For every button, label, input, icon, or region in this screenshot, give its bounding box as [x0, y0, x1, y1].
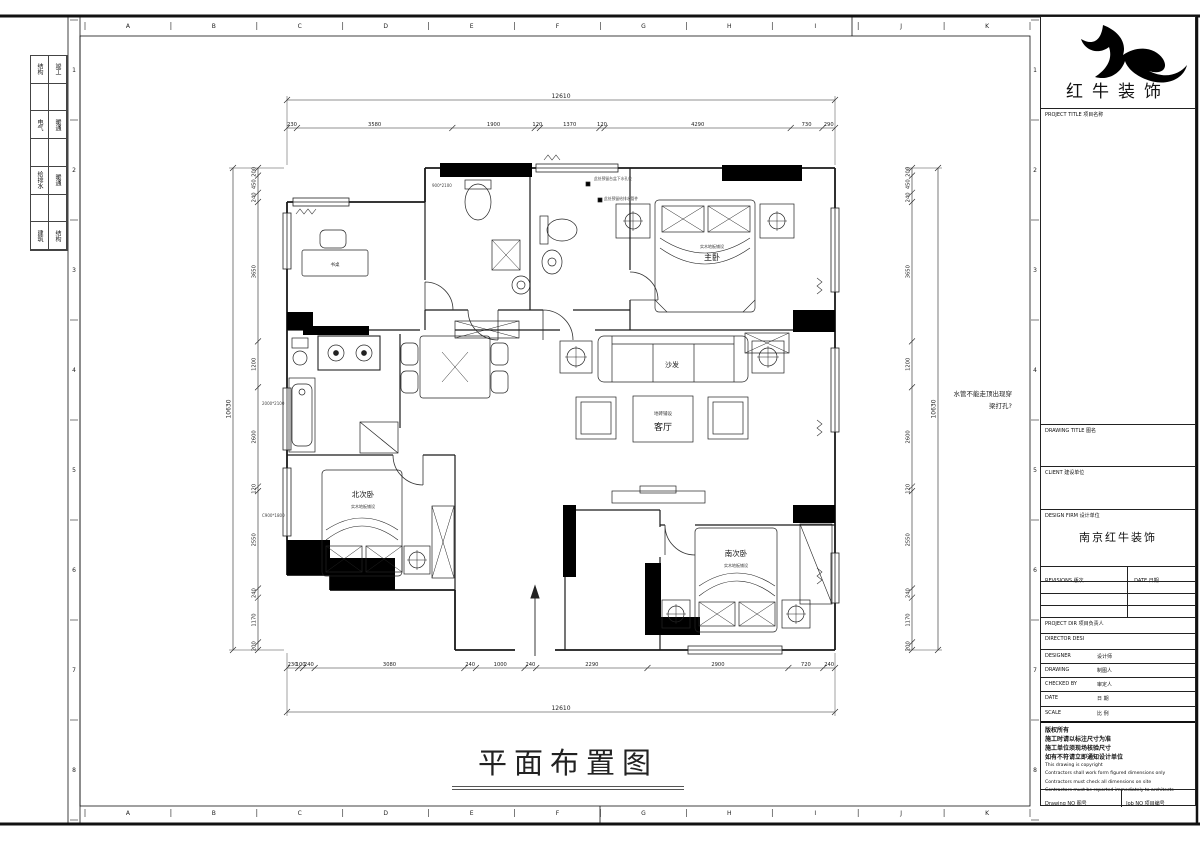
copyright-line: 施工单位须现场核验尺寸 — [1045, 744, 1195, 753]
revisions-header: REVISIONS 版次 DATE 日期 — [1041, 566, 1195, 581]
design-firm-label: DESIGN FIRM 设计单位 — [1041, 510, 1195, 519]
svg-text:B: B — [212, 23, 216, 30]
doors — [393, 272, 695, 555]
svg-text:7: 7 — [1033, 667, 1037, 674]
room-study: 书桌 — [302, 230, 368, 276]
dim-bottom-segments: 2301002403080240100024022902900720240 — [284, 662, 838, 671]
bathrooms: 此处预留台盆下水孔位 此处预留给排水管件 — [465, 176, 638, 294]
svg-text:5: 5 — [72, 467, 76, 474]
sofa-label: 沙发 — [665, 360, 679, 369]
copyright-line: Contractors shall work form figured dime… — [1045, 770, 1195, 778]
designer-row: DESIGNER设计师 — [1041, 649, 1195, 663]
svg-text:A: A — [126, 810, 131, 817]
revisions-row — [1041, 605, 1195, 617]
signoff-cell: 建筑 — [31, 222, 49, 250]
grid-numbers-right: 12345678 — [1031, 20, 1039, 820]
svg-text:E: E — [470, 23, 474, 30]
living-label: 客厅 — [654, 421, 672, 433]
copyright-line: 如有不符请立即通知设计单位 — [1045, 753, 1195, 762]
svg-text:1170: 1170 — [906, 613, 912, 626]
signoff-cell — [49, 139, 67, 167]
svg-text:5: 5 — [1033, 467, 1037, 474]
signoff-cell — [49, 195, 67, 223]
floor-plan: ABCDEFGHIJK ABCDEFGHIJK 12345678 1234567… — [0, 0, 1200, 844]
svg-text:I: I — [814, 810, 816, 817]
svg-text:3650: 3650 — [252, 265, 258, 278]
designer-label-cn: 设计师 — [1097, 653, 1112, 660]
svg-text:4290: 4290 — [691, 122, 704, 128]
plumbing-anno-1: 此处预留台盆下水孔位 — [594, 176, 632, 181]
svg-text:730: 730 — [802, 122, 812, 128]
svg-text:E: E — [470, 810, 474, 817]
project-title-label: PROJECT TITLE 项目名称 — [1041, 109, 1195, 118]
svg-text:D: D — [383, 810, 388, 817]
job-no-label: Job NO 项目编号 — [1122, 798, 1165, 807]
tag-window-left-1: 2000*2100 — [262, 401, 285, 406]
south-label: 南次卧 — [725, 548, 748, 558]
date-label-en: DATE — [1045, 695, 1097, 702]
design-firm-name: 南京红牛装饰 — [1041, 529, 1195, 545]
svg-text:4: 4 — [72, 367, 76, 374]
drawing-title-label: DRAWING TITLE 图名 — [1041, 425, 1195, 434]
svg-text:240: 240 — [252, 192, 258, 202]
drawing-title-section: DRAWING TITLE 图名 — [1041, 424, 1195, 466]
svg-text:I: I — [814, 23, 816, 30]
svg-text:C: C — [298, 810, 302, 817]
svg-text:1370: 1370 — [563, 122, 576, 128]
svg-text:230: 230 — [287, 122, 297, 128]
svg-text:1: 1 — [72, 67, 76, 74]
client-label: CLIENT 建设单位 — [1041, 467, 1195, 476]
brand-area: 红牛装饰 — [1041, 17, 1195, 108]
svg-text:K: K — [985, 23, 990, 30]
south-floor-label: 实木地板铺设 — [724, 562, 748, 568]
director-label: DIRECTOR DESI — [1041, 634, 1195, 642]
signoff-cell: 竣工 — [49, 56, 67, 84]
director-row: DIRECTOR DESI — [1041, 633, 1195, 649]
svg-text:240: 240 — [906, 192, 912, 202]
svg-text:2600: 2600 — [252, 430, 258, 443]
client-section: CLIENT 建设单位 — [1041, 466, 1195, 509]
project-title-section: PROJECT TITLE 项目名称 — [1041, 108, 1195, 424]
svg-text:1200: 1200 — [252, 358, 258, 371]
svg-text:120: 120 — [906, 484, 912, 494]
svg-text:A: A — [126, 23, 131, 30]
svg-text:10630: 10630 — [226, 399, 233, 418]
svg-text:B: B — [212, 810, 216, 817]
svg-text:F: F — [556, 23, 560, 30]
signoff-table: 结构 竣工 电气 暖通 给排水 暖通 建筑 结构 — [30, 55, 68, 251]
note-line-1: 水管不能走顶出现穿 — [954, 389, 1013, 398]
svg-text:2600: 2600 — [906, 430, 912, 443]
brand-name: 红牛装饰 — [1041, 77, 1195, 102]
svg-text:1200: 1200 — [906, 358, 912, 371]
wall-fills — [287, 163, 835, 635]
signoff-cell: 暖通 — [49, 111, 67, 139]
svg-text:2: 2 — [1033, 167, 1037, 174]
svg-text:10630: 10630 — [931, 399, 938, 418]
svg-text:3: 3 — [1033, 267, 1037, 274]
svg-text:6: 6 — [1033, 567, 1037, 574]
svg-text:200: 200 — [252, 167, 258, 177]
project-dir-row: PROJECT DIR 项目负责人 — [1041, 617, 1195, 633]
svg-text:3080: 3080 — [383, 662, 396, 668]
revisions-row — [1041, 593, 1195, 605]
signoff-cell — [49, 84, 67, 112]
svg-text:450: 450 — [252, 179, 258, 189]
dim-right-total: 10630 — [931, 165, 942, 653]
tag-window-left-2: C900*1800 — [262, 513, 285, 518]
date-label-cn: 日 期 — [1097, 695, 1109, 702]
dim-bottom-total: 12610 — [284, 705, 838, 715]
scale-label-en: SCALE — [1045, 710, 1097, 717]
room-kitchen — [289, 336, 398, 453]
svg-text:6: 6 — [72, 567, 76, 574]
drawing-label-cn: 制图人 — [1097, 667, 1112, 674]
note-line-2: 梁打孔? — [989, 401, 1012, 410]
svg-text:120: 120 — [532, 122, 542, 128]
svg-text:120: 120 — [252, 484, 258, 494]
svg-text:7: 7 — [72, 667, 76, 674]
drawing-sheet: { "sheet": { "grid_letters": ["A","B","C… — [0, 0, 1200, 844]
copyright-line: 版权所有 — [1045, 726, 1195, 735]
svg-text:D: D — [383, 23, 388, 30]
north-floor-label: 实木地板铺设 — [351, 503, 375, 509]
dim-top-segments: 2303580190012013701204290730290 — [284, 122, 838, 131]
master-floor-label: 实木地板铺设 — [700, 243, 724, 249]
signoff-cell: 给排水 — [31, 167, 49, 195]
svg-text:2550: 2550 — [906, 533, 912, 546]
room-master-bedroom: 实木地板铺设 主卧 — [616, 200, 794, 312]
svg-text:2900: 2900 — [711, 662, 724, 668]
drawing-no-divider — [1121, 790, 1122, 807]
svg-text:240: 240 — [252, 588, 258, 598]
svg-text:1: 1 — [1033, 67, 1037, 74]
signoff-cell: 结构 — [31, 56, 49, 84]
dim-right-segments: 20045024036501200260012025502401170200 — [906, 165, 916, 653]
room-south-bedroom: 南次卧 实木地板铺设 — [662, 524, 832, 632]
svg-text:290: 290 — [824, 122, 834, 128]
signoff-cell: 暖通 — [49, 167, 67, 195]
drawing-no-row: Drawing NO 图号 Job NO 项目编号 — [1041, 789, 1195, 807]
master-label: 主卧 — [704, 252, 720, 262]
svg-text:8: 8 — [1033, 767, 1037, 774]
svg-text:240: 240 — [304, 662, 314, 668]
copyright-line: This drawing is copyright — [1045, 762, 1195, 770]
svg-text:3650: 3650 — [906, 265, 912, 278]
copyright-line: 施工时请以标注尺寸为准 — [1045, 735, 1195, 744]
svg-text:240: 240 — [906, 588, 912, 598]
svg-text:4: 4 — [1033, 367, 1037, 374]
svg-text:200: 200 — [906, 641, 912, 651]
plan-title: 平面布置图 — [452, 740, 684, 790]
tag-door: 900*2100 — [432, 183, 452, 188]
copyright-line: Contractors must check all dimensions on… — [1045, 779, 1195, 787]
desk-label: 书桌 — [331, 261, 340, 268]
svg-text:2550: 2550 — [252, 533, 258, 546]
svg-text:240: 240 — [525, 662, 535, 668]
svg-text:F: F — [556, 810, 560, 817]
copyright-section: 版权所有 施工时请以标注尺寸为准 施工单位须现场核验尺寸 如有不符请立即通知设计… — [1041, 721, 1195, 789]
design-firm-section: DESIGN FIRM 设计单位 南京红牛装饰 — [1041, 509, 1195, 566]
drawing-row: DRAWING制图人 — [1041, 663, 1195, 677]
signoff-cell — [31, 139, 49, 167]
svg-text:G: G — [641, 23, 646, 30]
scale-row: SCALE比 例 — [1041, 706, 1195, 721]
svg-text:12610: 12610 — [551, 705, 570, 712]
svg-text:1000: 1000 — [494, 662, 507, 668]
date-row: DATE日 期 — [1041, 691, 1195, 706]
entry-arrow — [531, 586, 539, 656]
sheet-frame — [0, 16, 1200, 824]
svg-text:J: J — [899, 810, 902, 817]
signoff-cell: 电气 — [31, 111, 49, 139]
scale-label-cn: 比 例 — [1097, 710, 1109, 717]
dim-top-total: 12610 — [284, 93, 838, 103]
revisions-divider — [1127, 567, 1128, 581]
room-living: 沙发 地砖铺设 客厅 — [560, 333, 789, 503]
svg-text:200: 200 — [906, 167, 912, 177]
svg-text:12610: 12610 — [551, 93, 570, 100]
svg-text:200: 200 — [252, 641, 258, 651]
svg-text:450: 450 — [906, 179, 912, 189]
svg-text:2290: 2290 — [585, 662, 598, 668]
designer-label-en: DESIGNER — [1045, 653, 1097, 660]
drawing-no-label: Drawing NO 图号 — [1041, 798, 1117, 807]
signoff-cell: 结构 — [49, 222, 67, 250]
revisions-row — [1041, 581, 1195, 593]
svg-text:240: 240 — [465, 662, 475, 668]
checked-label-en: CHECKED BY — [1045, 681, 1097, 688]
svg-text:3580: 3580 — [368, 122, 381, 128]
svg-text:K: K — [985, 810, 990, 817]
title-block: 红牛装饰 PROJECT TITLE 项目名称 DRAWING TITLE 图名… — [1040, 16, 1196, 806]
svg-text:J: J — [899, 23, 902, 30]
svg-text:3: 3 — [72, 267, 76, 274]
svg-text:120: 120 — [597, 122, 607, 128]
svg-text:1900: 1900 — [487, 122, 500, 128]
drawing-label-en: DRAWING — [1045, 667, 1097, 674]
svg-text:G: G — [641, 810, 646, 817]
svg-text:C: C — [298, 23, 302, 30]
dim-left-segments: 20045024036501200260012025502401170200 — [252, 165, 262, 653]
svg-text:2: 2 — [72, 167, 76, 174]
checked-row: CHECKED BY审定人 — [1041, 677, 1195, 691]
checked-label-cn: 审定人 — [1097, 681, 1112, 688]
signoff-cell — [31, 84, 49, 112]
plumbing-note: 水管不能走顶出现穿 梁打孔? — [954, 389, 1013, 410]
dining-area — [401, 321, 519, 398]
svg-text:1170: 1170 — [252, 613, 258, 626]
svg-text:H: H — [727, 810, 732, 817]
svg-text:720: 720 — [801, 662, 811, 668]
svg-text:8: 8 — [72, 767, 76, 774]
signoff-cell — [31, 195, 49, 223]
project-dir-label: PROJECT DIR 项目负责人 — [1041, 618, 1195, 627]
grid-letters-bottom: ABCDEFGHIJK — [85, 809, 1030, 817]
dim-left-total: 10630 — [226, 165, 237, 653]
grid-numbers-left: 12345678 — [70, 20, 78, 820]
plumbing-anno-2: 此处预留给排水管件 — [604, 196, 638, 201]
svg-text:H: H — [727, 23, 732, 30]
living-floor-label: 地砖铺设 — [654, 410, 672, 417]
north-label: 北次卧 — [352, 489, 375, 499]
grid-letters-top: ABCDEFGHIJK — [85, 22, 1030, 30]
svg-text:240: 240 — [824, 662, 834, 668]
